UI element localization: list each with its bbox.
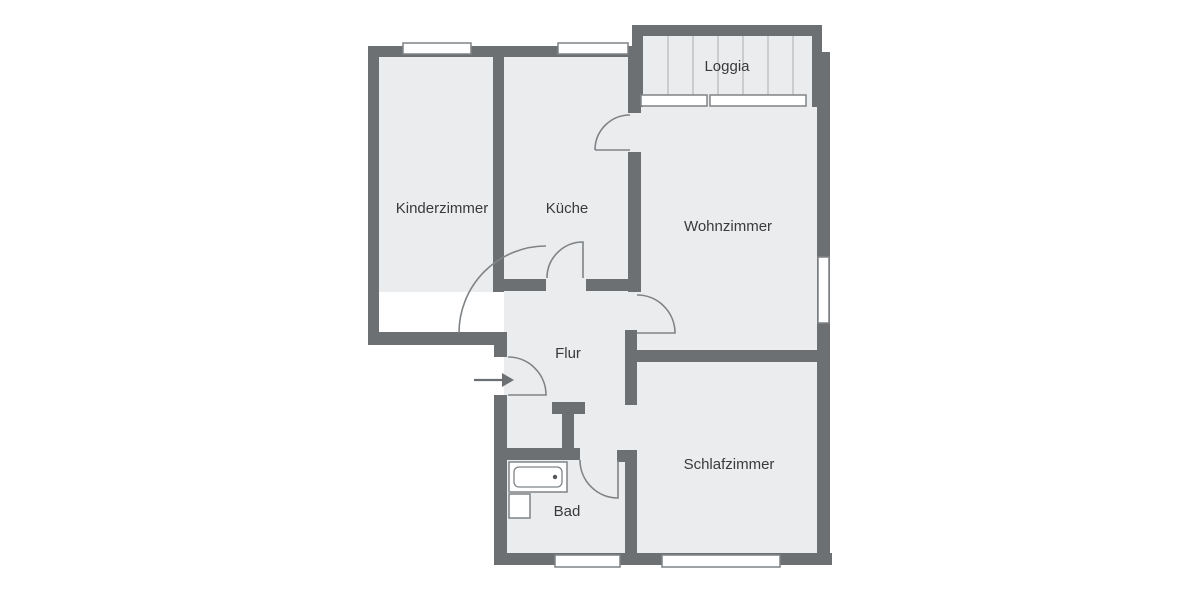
window-loggia-left bbox=[641, 95, 707, 106]
room-label-schlafzimmer: Schlafzimmer bbox=[684, 456, 775, 473]
washbasin-icon bbox=[509, 494, 530, 518]
room-fills bbox=[379, 35, 824, 556]
window-kinderzimmer bbox=[403, 43, 471, 54]
room-label-wohnzimmer: Wohnzimmer bbox=[684, 218, 772, 235]
window-wohnzimmer-east bbox=[818, 257, 829, 323]
bathtub-drain bbox=[553, 475, 557, 479]
room-label-kueche: Küche bbox=[546, 200, 589, 217]
wall-flur-schlafzimmer-upper bbox=[625, 330, 637, 405]
wall-flur-schlafzimmer-lower bbox=[625, 450, 637, 565]
wall-flur-t-bar bbox=[552, 402, 585, 414]
room-label-loggia: Loggia bbox=[704, 58, 750, 75]
wall-flur-t-stem bbox=[562, 414, 574, 450]
room-label-flur: Flur bbox=[555, 345, 581, 362]
room-label-bad: Bad bbox=[554, 503, 581, 520]
room-label-kinderzimmer: Kinderzimmer bbox=[396, 200, 489, 217]
window-bad bbox=[555, 555, 620, 567]
window-loggia-right bbox=[710, 95, 806, 106]
wall-kueche-south-left bbox=[493, 279, 546, 291]
floor-plan: Kinderzimmer Küche Wohnzimmer Loggia Flu… bbox=[0, 0, 1200, 600]
wall-left-lower-outer bbox=[494, 395, 507, 565]
wall-loggia-east bbox=[812, 25, 822, 107]
kinderzimmer-kueche-floor bbox=[379, 57, 641, 292]
wall-entrance-jamb-top bbox=[494, 345, 507, 357]
wall-kueche-east-lower bbox=[628, 152, 641, 292]
window-kueche bbox=[558, 43, 628, 54]
wall-kinderzimmer-south bbox=[368, 332, 507, 345]
wall-wohnzimmer-schlafzimmer bbox=[631, 350, 830, 362]
wall-left-outer bbox=[368, 46, 379, 345]
wall-loggia-north bbox=[632, 25, 822, 36]
wall-kinderzimmer-kueche bbox=[493, 57, 504, 292]
floor-plan-canvas: Kinderzimmer Küche Wohnzimmer Loggia Flu… bbox=[0, 0, 1200, 600]
wall-kueche-east-upper bbox=[628, 46, 641, 113]
window-schlafzimmer bbox=[662, 555, 780, 567]
